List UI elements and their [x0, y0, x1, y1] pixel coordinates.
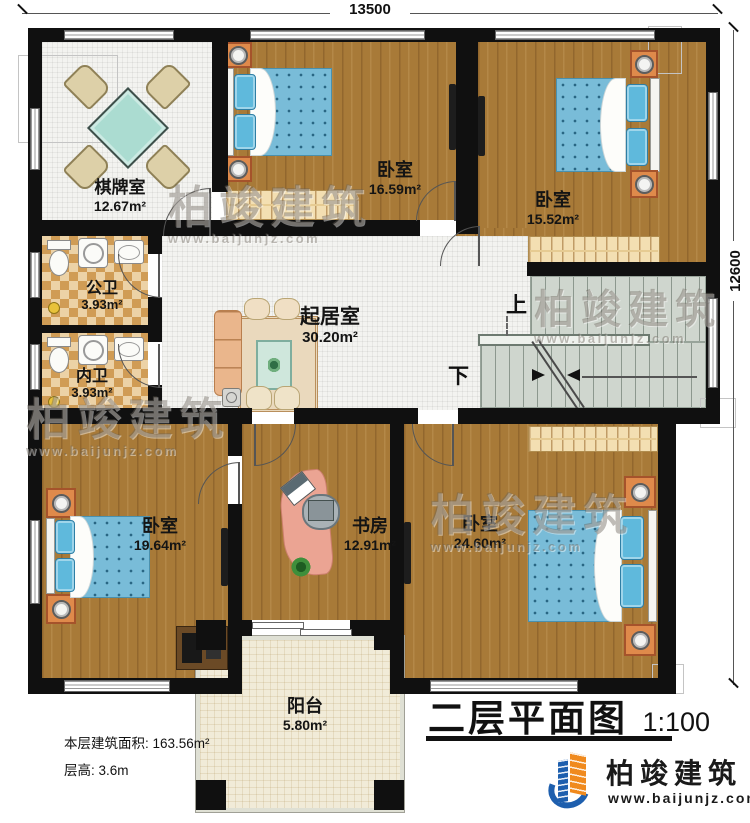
stair-direction-arrow: [567, 369, 580, 381]
logo-building-orange-icon: [570, 752, 586, 795]
watermark-url: www.baijunjz.com: [534, 332, 722, 345]
window: [495, 30, 655, 40]
door-arc: [440, 226, 480, 266]
balcony-column: [374, 780, 404, 810]
lamp-icon: [631, 631, 650, 650]
sliding-door-leaf: [252, 622, 304, 629]
room-name: 起居室: [265, 306, 395, 329]
nightstand: [224, 156, 252, 182]
room-area: 12.91m²: [320, 537, 420, 553]
wall-segment: [212, 28, 228, 192]
watermark: 柏竣建筑 www.baijunjz.com: [168, 186, 372, 245]
floor-height-note: 层高: 3.6m: [64, 757, 210, 784]
window: [30, 520, 40, 604]
dimension-right-label: 12600: [727, 241, 745, 301]
watermark: 柏竣建筑 www.baijunjz.com: [26, 398, 230, 457]
window: [30, 108, 40, 170]
floor-area-note: 本层建筑面积: 163.56m²: [64, 730, 210, 757]
lamp-icon: [635, 175, 654, 194]
watermark-url: www.baijunjz.com: [430, 540, 634, 553]
room-area: 5.80m²: [255, 717, 355, 733]
tv: [449, 84, 456, 150]
wall-segment: [242, 620, 252, 636]
pillow: [234, 114, 256, 150]
wall-segment: [294, 408, 418, 424]
wall-segment: [658, 408, 676, 694]
wardrobe-rail: [530, 438, 656, 440]
wall-segment: [456, 28, 478, 234]
armchair: [274, 386, 300, 410]
room-name: 棋牌室: [60, 178, 180, 198]
logo-website: www.baijunjz.com: [608, 790, 750, 806]
balcony-column: [196, 620, 226, 650]
nightstand: [624, 624, 656, 656]
room-name: 内卫: [42, 368, 142, 386]
sliding-door-leaf: [300, 629, 352, 636]
nightstand: [46, 488, 76, 518]
room-label-living-room: 起居室 30.20m²: [265, 306, 395, 346]
logo-building-blue-icon: [558, 759, 568, 803]
lamp-icon: [635, 55, 654, 74]
wall-segment: [527, 262, 706, 276]
pillow: [620, 564, 644, 608]
title-block: 二层平面图 1:100: [428, 688, 710, 742]
door-leaf: [454, 181, 456, 221]
wall-segment: [148, 236, 162, 254]
room-label-chess-room: 棋牌室 12.67m²: [60, 178, 180, 214]
room-name: 卧室: [498, 190, 608, 211]
room-area: 15.52m²: [498, 211, 608, 227]
washer-drum-icon: [83, 340, 104, 361]
window: [30, 252, 40, 298]
wall-segment: [458, 408, 720, 424]
door-leaf: [254, 424, 256, 466]
stair-lower-flight: [480, 342, 706, 408]
door-leaf: [158, 254, 160, 298]
pillow: [626, 84, 648, 122]
door-leaf: [452, 424, 454, 466]
bed-headboard: [648, 510, 657, 622]
watermark-text: 柏竣建筑: [26, 398, 230, 442]
wall-segment: [228, 424, 242, 456]
watermark: 柏竣建筑 www.baijunjz.com: [534, 290, 722, 345]
bed-headboard: [650, 78, 660, 172]
window: [64, 680, 170, 692]
tv: [478, 96, 485, 156]
watermark-url: www.baijunjz.com: [26, 444, 230, 457]
washing-machine: [78, 238, 108, 268]
company-logo: 柏竣建筑 www.baijunjz.com: [546, 750, 746, 814]
room-label-study: 书房 12.91m²: [320, 516, 420, 553]
pillow: [626, 128, 648, 166]
wardrobe-rail: [530, 250, 658, 252]
nightstand: [630, 170, 658, 198]
stair-dashed-line: [506, 316, 508, 336]
door-leaf: [478, 226, 480, 266]
watermark-url: www.baijunjz.com: [168, 232, 372, 245]
pillow: [55, 558, 75, 592]
room-label-balcony: 阳台 5.80m²: [255, 696, 355, 733]
stair-arrow-line: [582, 376, 697, 378]
room-name: 卧室: [105, 516, 215, 537]
plant-icon: [290, 556, 312, 578]
room-area: 3.93m²: [52, 298, 152, 313]
watermark-text: 柏竣建筑: [534, 290, 722, 330]
toilet-tank: [47, 337, 71, 347]
room-label-public-bath: 公卫 3.93m²: [52, 280, 152, 313]
stair-down-label: 下: [448, 360, 469, 390]
sofa: [214, 310, 242, 396]
wall-segment: [28, 325, 160, 333]
watermark-text: 柏竣建筑: [168, 186, 372, 230]
nightstand: [630, 50, 658, 78]
balcony-column: [196, 780, 226, 810]
tv: [221, 528, 228, 586]
plan-scale: 1:100: [642, 707, 710, 737]
room-name: 阳台: [255, 696, 355, 717]
lamp-icon: [229, 46, 248, 65]
room-name: 书房: [320, 516, 420, 537]
stair-direction-arrow: [532, 369, 545, 381]
toilet-tank: [47, 240, 71, 250]
nightstand: [46, 594, 76, 624]
dimension-line-right: [733, 30, 734, 685]
table-plant-icon: [268, 355, 280, 375]
watermark-text: 柏竣建筑: [430, 494, 634, 538]
bed-headboard: [46, 518, 55, 594]
room-area: 12.67m²: [60, 198, 180, 214]
window: [30, 344, 40, 390]
room-label-bedroom-3: 卧室 19.64m²: [105, 516, 215, 553]
nightstand: [224, 42, 252, 68]
stair-up-label: 上: [506, 289, 527, 319]
lamp-icon: [52, 600, 71, 619]
room-area: 30.20m²: [265, 329, 395, 346]
room-area: 19.64m²: [105, 537, 215, 553]
floor-plan: 上 下: [0, 0, 750, 823]
window: [708, 92, 718, 180]
window: [64, 30, 174, 40]
coffee-table: [256, 340, 292, 390]
dimension-top-label: 13500: [330, 1, 410, 20]
plan-notes: 本层建筑面积: 163.56m² 层高: 3.6m: [64, 730, 210, 784]
lamp-icon: [52, 494, 71, 513]
room-label-bedroom-2: 卧室 15.52m²: [498, 190, 608, 227]
wardrobe: [528, 426, 658, 452]
pillow: [234, 74, 256, 110]
room-name: 卧室: [340, 160, 450, 181]
toilet: [49, 250, 69, 276]
window: [250, 30, 425, 40]
washer-drum-icon: [83, 243, 104, 264]
wall-segment: [228, 504, 242, 678]
armchair: [246, 386, 272, 410]
room-name: 公卫: [52, 280, 152, 298]
title-underline: [426, 736, 672, 741]
door-leaf: [238, 462, 240, 504]
plan-title: 二层平面图: [428, 698, 628, 739]
logo-swoosh-icon: [542, 763, 596, 815]
door-leaf: [158, 344, 160, 388]
pillow: [55, 520, 75, 554]
balcony-column: [374, 620, 404, 650]
bed-sheet: [600, 78, 626, 172]
logo-company-name: 柏竣建筑: [606, 752, 742, 792]
watermark: 柏竣建筑 www.baijunjz.com: [430, 494, 634, 553]
washing-machine: [78, 335, 108, 365]
lamp-icon: [229, 160, 248, 179]
